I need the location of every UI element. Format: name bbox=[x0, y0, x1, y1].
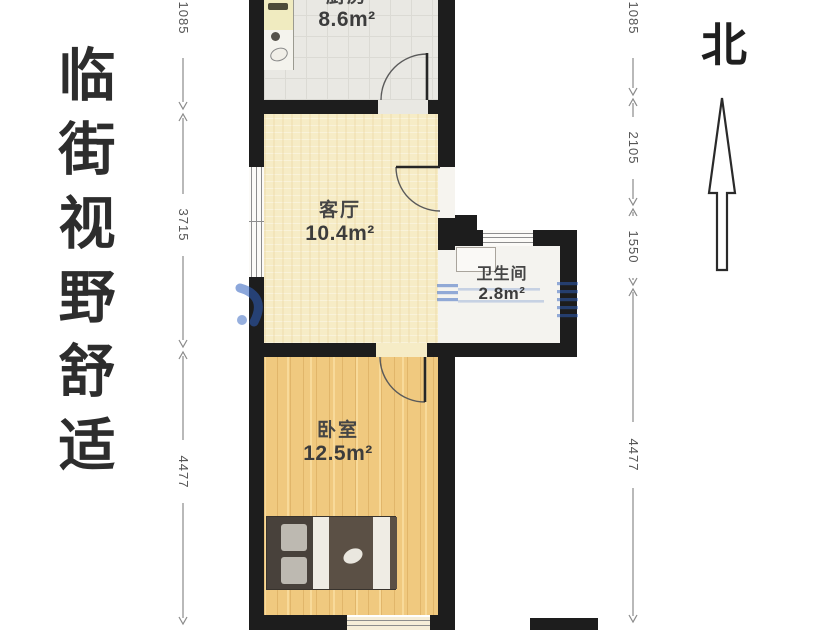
dimension-line-left bbox=[168, 0, 200, 630]
dim-right-1085: 1085 bbox=[625, 0, 641, 48]
dim-left-3715: 3715 bbox=[175, 195, 191, 255]
dim-right-1550: 1550 bbox=[625, 217, 641, 277]
dimension-line-right bbox=[618, 0, 650, 630]
bedroom-area: 12.5m² bbox=[303, 442, 373, 466]
bathroom-area: 2.8m² bbox=[476, 284, 527, 304]
dim-right-2105: 2105 bbox=[625, 118, 641, 178]
bathroom-label: 卫生间 2.8m² bbox=[476, 266, 527, 304]
dim-left-4477: 4477 bbox=[175, 442, 191, 502]
living-room-name: 客厅 bbox=[305, 200, 375, 222]
bedroom-label: 卧室 12.5m² bbox=[303, 420, 373, 466]
kitchen-area: 8.6m² bbox=[318, 8, 375, 32]
kitchen-name: 厨房 bbox=[318, 0, 375, 8]
north-label: 北 bbox=[694, 22, 754, 68]
watermark-logo-swoosh bbox=[237, 288, 258, 325]
north-arrow-icon bbox=[690, 90, 754, 280]
bedroom-name: 卧室 bbox=[303, 420, 373, 442]
floor-plan-image: 临 街 视 野 舒 适 bbox=[0, 0, 840, 630]
dim-left-1085: 1085 bbox=[175, 0, 191, 48]
dim-right-4477: 4477 bbox=[625, 425, 641, 485]
kitchen-label: 厨房 8.6m² bbox=[318, 0, 375, 32]
living-room-area: 10.4m² bbox=[305, 222, 375, 246]
bathroom-name: 卫生间 bbox=[476, 266, 527, 284]
living-room-label: 客厅 10.4m² bbox=[305, 200, 375, 246]
